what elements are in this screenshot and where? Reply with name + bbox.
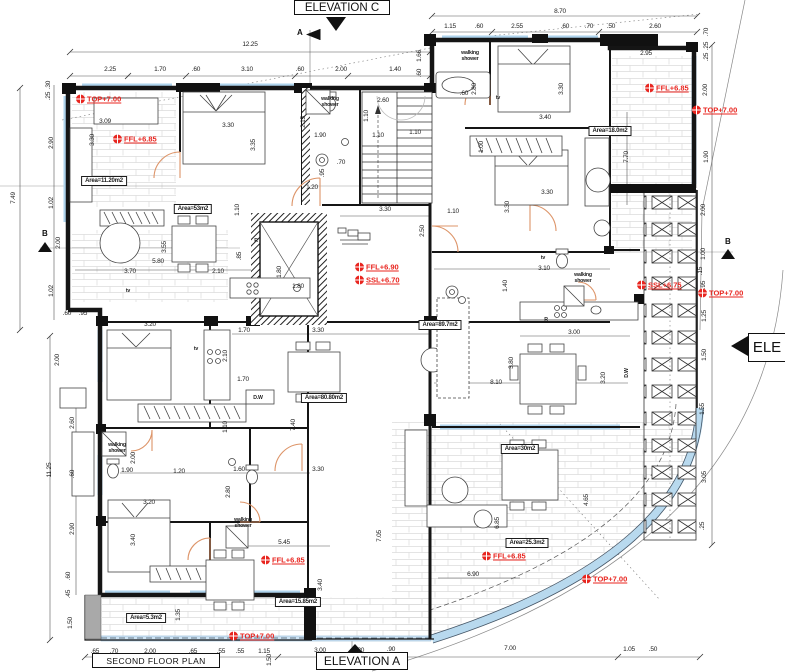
dimension-label: 7.40 — [291, 419, 298, 431]
dimension-label: 3.40 — [539, 115, 551, 122]
dimension-label: .25 — [704, 42, 711, 50]
plan-title: SECOND FLOOR PLAN — [92, 653, 220, 668]
area-label: Area=15.85m2 — [275, 597, 321, 607]
dimension-label: 2.60 — [649, 24, 661, 31]
feature-label: D.W — [253, 396, 262, 402]
dimension-label: 1.60 — [233, 467, 245, 474]
dimension-label: 1.35 — [176, 609, 183, 621]
dimension-label: 3.30 — [505, 201, 512, 213]
level-annotation: FFL+6.90 — [355, 263, 399, 272]
dimension-label: .45 — [66, 590, 73, 598]
dimension-label: .85 — [237, 252, 244, 260]
dimension-label: .95 — [79, 311, 87, 318]
dimension-label: 1.10 — [223, 421, 230, 433]
dimension-label: 1.50 — [68, 617, 75, 629]
dimension-label: 2.55 — [511, 24, 523, 31]
dimension-label: .25 — [704, 53, 711, 61]
dimension-label: 1.70 — [154, 67, 166, 74]
dimension-label: 3.00 — [568, 330, 580, 337]
dimension-label: .60 — [70, 470, 77, 478]
dimension-label: 1.02 — [49, 285, 56, 297]
dimension-label: 5.80 — [152, 259, 164, 266]
dimension-label: 8.10 — [490, 380, 502, 387]
dimension-label: 3.20 — [143, 500, 155, 507]
feature-label: walking shower — [461, 51, 479, 63]
dimension-label: .60 — [192, 67, 200, 74]
dimension-label: 11.25 — [47, 463, 54, 478]
dimension-label: 2.10 — [212, 269, 224, 276]
dimension-label: 3.30 — [90, 134, 97, 146]
dimension-label: 5.45 — [278, 540, 290, 547]
dimension-label: 1.90 — [704, 151, 711, 163]
area-label: Area=11.20m2 — [81, 176, 127, 186]
dimension-label: 2.60 — [70, 417, 77, 429]
dimension-label: 3.35 — [251, 139, 258, 151]
dimension-label: .70 — [337, 160, 345, 167]
dimension-label: 1.50 — [267, 654, 274, 666]
feature-label: tv — [496, 96, 500, 102]
level-annotation: SSL+6.75 — [637, 281, 682, 290]
dimension-label: 3.20 — [601, 372, 608, 384]
dimension-label: 2.60 — [377, 98, 389, 105]
level-annotation: TOP+7.00 — [698, 289, 743, 298]
dimension-label: .30 — [46, 81, 53, 89]
level-annotation: TOP+7.00 — [229, 632, 274, 641]
dimension-label: 2.80 — [472, 83, 479, 95]
dimension-label: 1.20 — [173, 469, 185, 476]
feature-label: tv — [194, 347, 198, 353]
dimension-label: 4.65 — [584, 494, 591, 506]
dimension-label: .95 — [320, 169, 327, 177]
dimension-label: 2.90 — [70, 523, 77, 535]
feature-label: tv — [126, 289, 130, 295]
dimension-label: 1.80 — [277, 266, 284, 278]
elevation-c-label: ELEVATION C — [294, 0, 390, 15]
dimension-label: 1.05 — [623, 647, 635, 654]
dimension-label: 2.80 — [226, 486, 233, 498]
elevation-a-label: ELEVATION A — [316, 652, 408, 670]
dimension-label: .60 — [63, 311, 71, 318]
dimension-label: 1.00 — [701, 248, 708, 260]
dimension-label: 1.66 — [417, 50, 424, 62]
dimension-label: .15 — [698, 267, 705, 275]
dimension-label: .55 — [236, 649, 244, 656]
dimension-label: 1.70 — [238, 328, 250, 335]
dimension-label: 1.10 — [364, 110, 371, 122]
dimension-label: 3.30 — [379, 207, 391, 214]
area-label: Area=89.7m2 — [419, 320, 462, 330]
dimension-label: 2.00 — [56, 237, 63, 249]
level-annotation: FFL+6.85 — [113, 135, 157, 144]
feature-label: R — [544, 318, 548, 324]
dimension-label: 2.95 — [640, 51, 652, 58]
dimension-label: .70 — [704, 28, 711, 36]
dimension-label: 1.90 — [314, 133, 326, 140]
dimension-label: 2.50 — [420, 225, 427, 237]
feature-label: R — [254, 239, 258, 245]
area-label: Area=30m2 — [501, 444, 539, 454]
dimension-label: 3.30 — [222, 123, 234, 130]
area-label: Area=5.3m2 — [126, 613, 166, 623]
dimension-label: 3.40 — [318, 579, 325, 591]
dimension-label: 1.10 — [235, 204, 242, 216]
dimension-label: 2.25 — [104, 67, 116, 74]
floor-plan-page: 12.252.251.70.603.10.602.001.408.701.15.… — [0, 0, 785, 672]
dimension-label: 3.30 — [541, 190, 553, 197]
dimension-label: 2.90 — [49, 137, 56, 149]
dimension-label: 1.40 — [389, 67, 401, 74]
dimension-label: 1.20 — [306, 185, 318, 192]
dimension-label: 2.00 — [335, 67, 347, 74]
dimension-label: 12.25 — [242, 42, 257, 49]
feature-label: walking shower — [234, 518, 252, 530]
dimension-label: .60 — [66, 572, 73, 580]
dimension-label: 7.05 — [377, 530, 384, 542]
feature-label: D.W — [625, 368, 631, 377]
dimension-label: 1.15 — [444, 24, 456, 31]
level-annotation: TOP+7.00 — [692, 106, 737, 115]
dimension-label: 1.10 — [409, 130, 421, 137]
level-annotation: FFL+6.85 — [261, 556, 305, 565]
dimension-label: 3.30 — [312, 467, 324, 474]
feature-label: walking shower — [108, 443, 126, 455]
area-label: Area=80.80m2 — [301, 393, 347, 403]
dimension-label: 1.90 — [121, 468, 133, 475]
dimension-label: 3.05 — [702, 471, 709, 483]
dimension-label: .50 — [649, 647, 657, 654]
area-label: Area=18.0m2 — [589, 126, 632, 136]
dimension-label: .60 — [296, 67, 304, 74]
section-marker-b-right: B — [725, 237, 731, 246]
dimension-label: 1.55 — [700, 403, 707, 415]
elevation-b-label-partial: ELE — [748, 333, 785, 362]
feature-label: tv — [541, 256, 545, 262]
dimension-label: 1.50 — [702, 349, 709, 361]
dimension-label: 3.30 — [312, 328, 324, 335]
dimension-label: 3.80 — [509, 357, 516, 369]
dimension-label: 1.40 — [503, 280, 510, 292]
dimension-label: .60 — [417, 69, 424, 77]
dimension-label: .50 — [607, 24, 615, 31]
dimension-label: 1.02 — [49, 197, 56, 209]
dimension-label: .60 — [475, 24, 483, 31]
dimension-label: 3.55 — [162, 241, 169, 253]
dimension-label: 3.70 — [124, 269, 136, 276]
dimension-label: .25 — [700, 522, 707, 530]
area-label: Area=25.3m2 — [506, 538, 549, 548]
dimension-label: 2.00 — [703, 84, 710, 96]
dimension-label: 6.85 — [495, 517, 502, 529]
dimension-label: 1.70 — [237, 377, 249, 384]
dimension-label: 3.10 — [538, 266, 550, 273]
dimension-label: 7.00 — [504, 646, 516, 653]
dimension-label: 1.00 — [479, 141, 486, 153]
section-marker-a: A — [297, 28, 303, 37]
dimension-label: 3.20 — [144, 322, 156, 329]
level-annotation: TOP+7.00 — [76, 95, 121, 104]
dimension-label: 1.80 — [292, 284, 304, 291]
dimension-label: 1.10 — [372, 133, 384, 140]
dimension-label: 7.70 — [624, 151, 631, 163]
dimension-label: 2.00 — [701, 204, 708, 216]
dimension-label: 8.70 — [554, 9, 566, 16]
dimension-label: 2.00 — [131, 452, 138, 464]
dimension-label: 3.09 — [99, 119, 111, 126]
dimension-label: .60 — [561, 24, 569, 31]
level-annotation: SSL+6.70 — [355, 276, 400, 285]
dimension-label: .60 — [460, 91, 468, 98]
dimension-label: 2.10 — [223, 350, 230, 362]
area-label: Area=53m2 — [174, 204, 212, 214]
dimension-label: 2.00 — [55, 354, 62, 366]
dimension-label: 1.25 — [702, 310, 709, 322]
dimension-label: 2.15 — [301, 116, 308, 128]
dimension-label: 1.10 — [447, 209, 459, 216]
level-annotation: FFL+6.85 — [645, 84, 689, 93]
dimension-label: .70 — [585, 24, 593, 31]
dimension-label: 3.10 — [241, 67, 253, 74]
feature-label: walking shower — [574, 273, 592, 285]
dimension-label: .25 — [46, 92, 53, 100]
level-annotation: TOP+7.00 — [582, 575, 627, 584]
feature-label: walking shower — [321, 97, 339, 109]
section-marker-b-left: B — [42, 229, 48, 238]
dimension-label: 7.49 — [11, 192, 18, 204]
dimension-label: 3.40 — [131, 534, 138, 546]
dimension-label: 6.90 — [467, 572, 479, 579]
dimension-label: 3.30 — [559, 83, 566, 95]
level-annotation: FFL+6.85 — [482, 552, 526, 561]
annotation-layer: 12.252.251.70.603.10.602.001.408.701.15.… — [0, 0, 785, 672]
